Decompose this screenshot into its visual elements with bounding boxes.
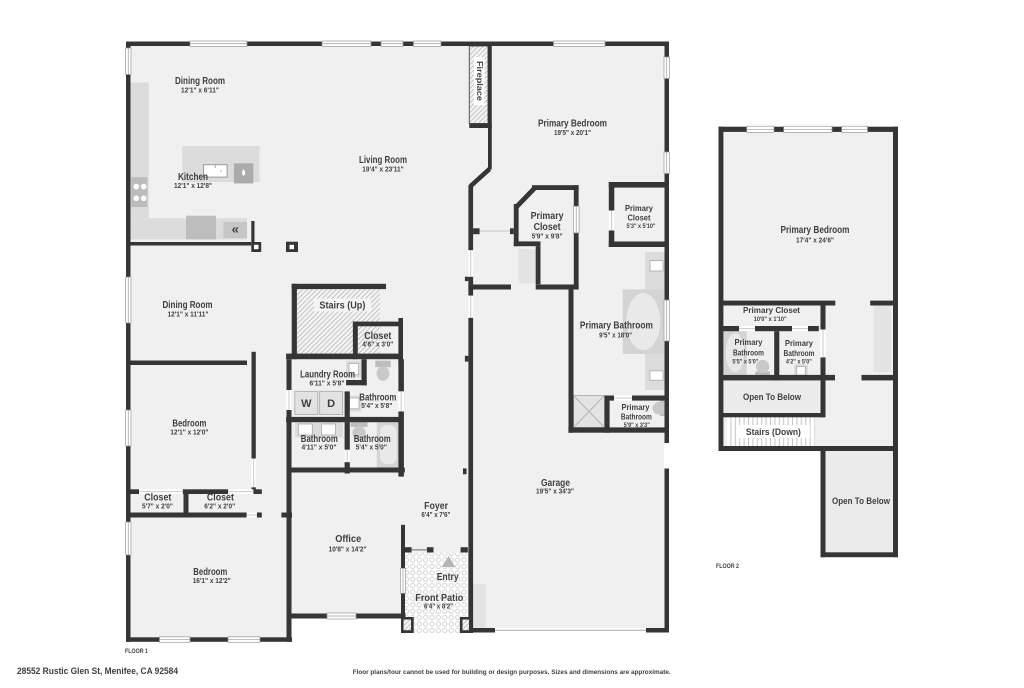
svg-text:«: « [232, 222, 239, 237]
svg-text:16'1" x 12'2": 16'1" x 12'2" [193, 578, 231, 585]
svg-text:Primary: Primary [531, 211, 564, 222]
svg-text:19'5" x 20'1": 19'5" x 20'1" [554, 130, 591, 137]
svg-text:Primary Bedroom: Primary Bedroom [781, 225, 850, 236]
svg-text:5'7" x 2'0": 5'7" x 2'0" [142, 503, 173, 510]
svg-text:FLOOR 2: FLOOR 2 [716, 563, 739, 570]
svg-text:Front Patio: Front Patio [415, 593, 463, 604]
svg-text:Bathroom: Bathroom [733, 347, 764, 357]
svg-text:17'4" x 24'6": 17'4" x 24'6" [796, 238, 834, 245]
svg-text:Bathroom: Bathroom [621, 411, 652, 421]
svg-text:5'4" x 5'0": 5'4" x 5'0" [356, 444, 387, 451]
svg-text:5'3" x 5'10": 5'3" x 5'10" [627, 223, 656, 230]
svg-text:Laundry Room: Laundry Room [300, 369, 355, 380]
svg-text:Primary: Primary [625, 203, 653, 213]
svg-text:W: W [301, 398, 312, 410]
svg-text:Closet: Closet [144, 493, 172, 504]
svg-text:Foyer: Foyer [424, 501, 448, 512]
svg-text:6'2" x 2'0": 6'2" x 2'0" [204, 503, 235, 510]
svg-text:Office: Office [335, 534, 361, 545]
svg-text:5'4" x 5'8": 5'4" x 5'8" [361, 403, 392, 410]
svg-text:Primary Bathroom: Primary Bathroom [580, 321, 653, 332]
svg-text:Floor plans/tour cannot be use: Floor plans/tour cannot be used for buil… [353, 669, 671, 676]
svg-text:6'11" x 5'8": 6'11" x 5'8" [310, 380, 345, 387]
svg-text:5'9" x 3'3": 5'9" x 3'3" [624, 422, 650, 429]
svg-text:10'0" x 1'10": 10'0" x 1'10" [754, 316, 787, 323]
svg-text:Kitchen: Kitchen [178, 172, 208, 183]
svg-text:Living Room: Living Room [359, 155, 407, 166]
svg-text:28552 Rustic Glen St, Menifee,: 28552 Rustic Glen St, Menifee, CA 92584 [17, 666, 178, 676]
svg-text:6'4" x 8'2": 6'4" x 8'2" [424, 604, 453, 611]
svg-text:Stairs (Down): Stairs (Down) [746, 427, 801, 437]
svg-text:Bathroom: Bathroom [301, 434, 338, 445]
svg-text:19'5" x 34'3": 19'5" x 34'3" [536, 489, 574, 496]
svg-text:Dining Room: Dining Room [163, 300, 213, 311]
svg-text:Closet: Closet [364, 331, 392, 342]
svg-text:FLOOR 1: FLOOR 1 [125, 648, 148, 655]
svg-text:Closet: Closet [628, 212, 651, 222]
svg-text:5'9" x 9'8": 5'9" x 9'8" [532, 233, 563, 240]
svg-text:10'8" x 14'2": 10'8" x 14'2" [329, 546, 367, 553]
svg-text:12'1" x 12'8": 12'1" x 12'8" [174, 183, 212, 190]
svg-text:Bathroom: Bathroom [354, 434, 391, 445]
svg-text:Bathroom: Bathroom [784, 348, 815, 358]
svg-text:Stairs (Up): Stairs (Up) [319, 301, 365, 312]
svg-text:Garage: Garage [541, 478, 570, 489]
svg-text:Fireplace: Fireplace [475, 61, 485, 101]
svg-text:Closet: Closet [534, 222, 562, 233]
svg-text:Entry: Entry [437, 572, 459, 583]
svg-text:Dining Room: Dining Room [175, 76, 225, 87]
svg-text:D: D [327, 398, 335, 410]
svg-text:4'11" x 5'0": 4'11" x 5'0" [302, 444, 337, 451]
svg-text:Bathroom: Bathroom [359, 392, 396, 403]
svg-text:Primary Bedroom: Primary Bedroom [538, 119, 607, 130]
svg-text:19'4" x 23'11": 19'4" x 23'11" [362, 166, 404, 173]
svg-text:12'1" x 12'0": 12'1" x 12'0" [170, 429, 208, 436]
svg-text:6'4" x 7'6": 6'4" x 7'6" [421, 512, 450, 519]
svg-text:5'5" x 5'0": 5'5" x 5'0" [732, 358, 758, 365]
svg-text:Primary: Primary [735, 337, 763, 347]
svg-text:Open To Below: Open To Below [832, 496, 891, 506]
svg-text:Open To Below: Open To Below [743, 392, 802, 402]
svg-text:Primary Closet: Primary Closet [743, 305, 800, 315]
svg-text:Primary: Primary [785, 338, 813, 348]
svg-text:4'6" x 3'0": 4'6" x 3'0" [362, 342, 393, 349]
svg-text:Closet: Closet [207, 493, 235, 504]
svg-text:4'2" x 5'0": 4'2" x 5'0" [786, 359, 812, 366]
svg-text:12'1" x 6'11": 12'1" x 6'11" [181, 87, 219, 94]
svg-text:12'1" x 11'11": 12'1" x 11'11" [168, 311, 209, 318]
svg-text:Bedroom: Bedroom [193, 567, 227, 578]
svg-text:9'5" x 18'0": 9'5" x 18'0" [599, 332, 632, 339]
svg-text:Bedroom: Bedroom [172, 418, 206, 429]
